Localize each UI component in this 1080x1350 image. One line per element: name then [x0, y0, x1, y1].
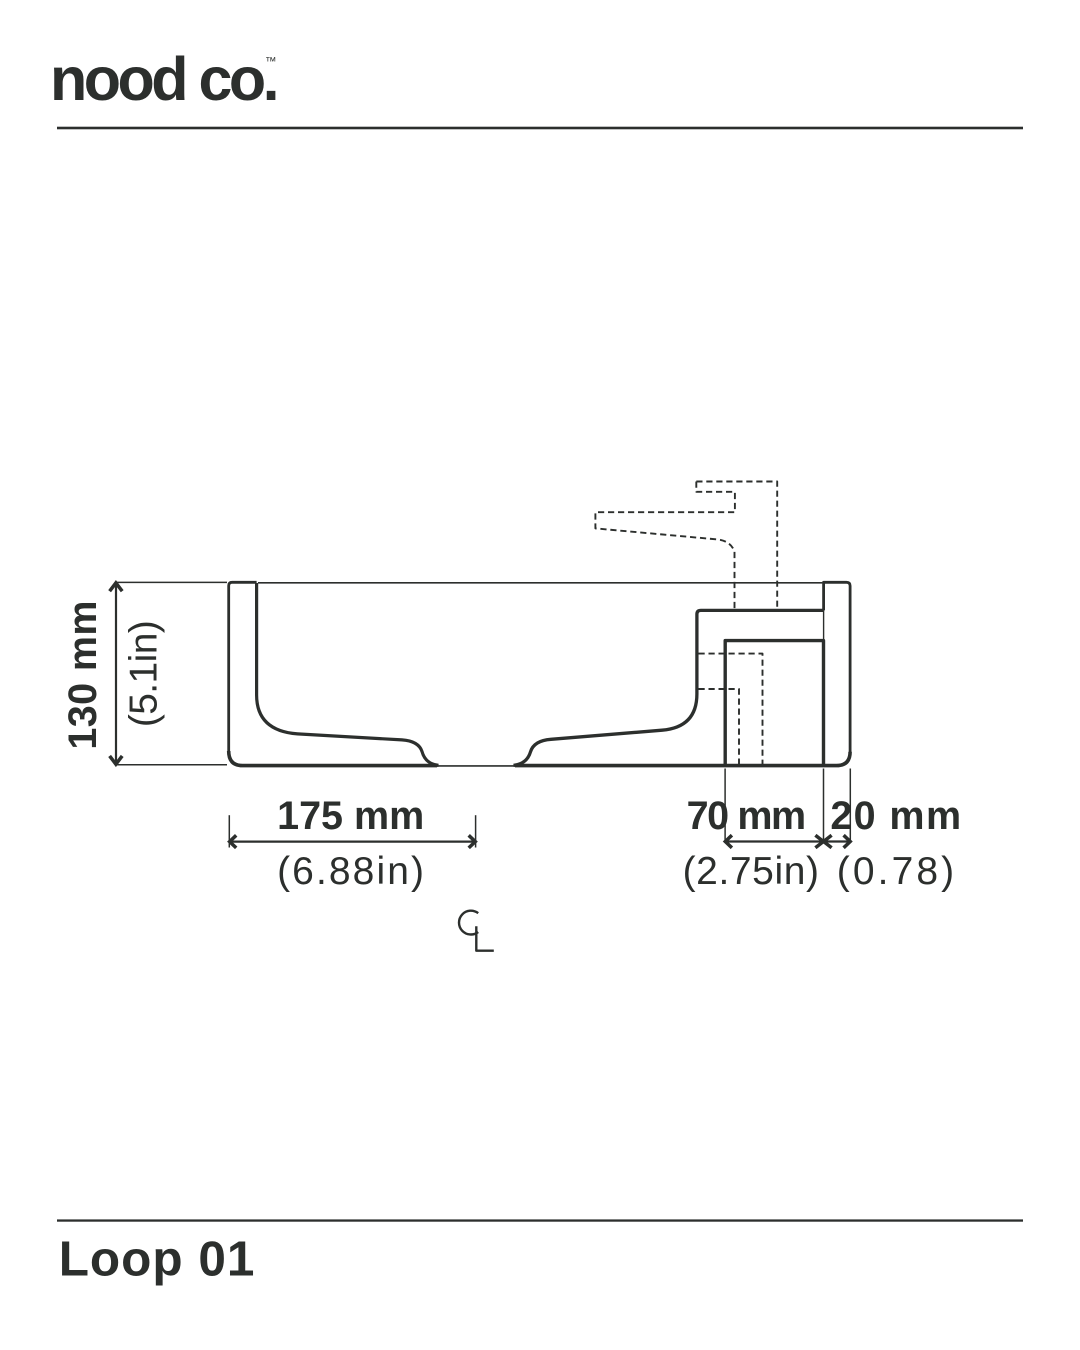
svg-text:20 mm: 20 mm — [830, 794, 962, 838]
svg-text:Loop 01: Loop 01 — [59, 1231, 256, 1286]
svg-text:(2.75in): (2.75in) — [683, 850, 820, 893]
svg-text:175 mm: 175 mm — [277, 794, 424, 838]
svg-text:(5.1in): (5.1in) — [122, 621, 165, 727]
svg-text:70 mm: 70 mm — [687, 794, 805, 838]
svg-text:™: ™ — [265, 56, 277, 68]
svg-text:(6.88in): (6.88in) — [277, 850, 426, 893]
svg-text:nood co.: nood co. — [50, 45, 276, 113]
svg-text:(0.78): (0.78) — [837, 850, 957, 893]
svg-text:130 mm: 130 mm — [61, 600, 105, 750]
